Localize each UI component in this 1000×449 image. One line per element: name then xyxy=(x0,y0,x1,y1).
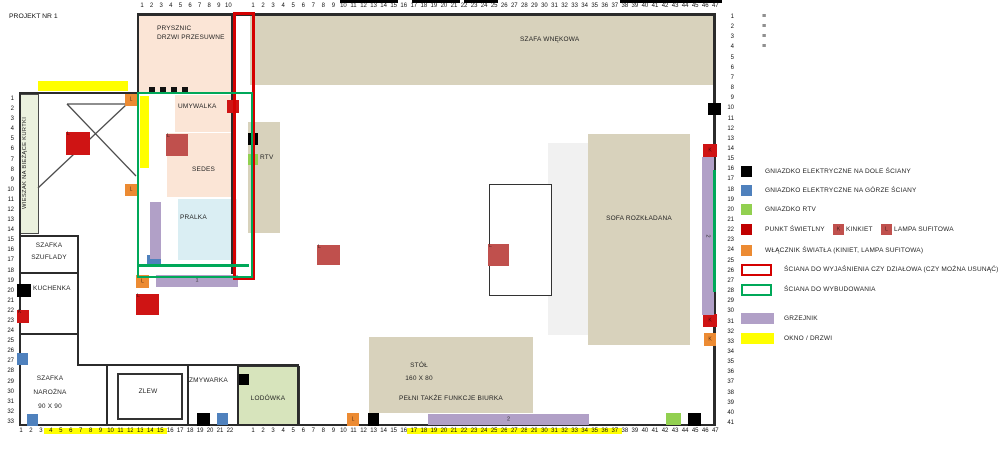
ruler-right-34: 34 xyxy=(722,349,734,355)
outlet-top-swatch xyxy=(741,185,752,196)
ruler-right-27: 27 xyxy=(722,278,734,284)
outlet-top-marker xyxy=(27,414,38,426)
light-point-marker: L xyxy=(66,132,90,155)
block-sofa xyxy=(588,134,690,345)
equals-mark: ≡ xyxy=(762,43,766,50)
label-szafka-szuflady-1: SZAFKA xyxy=(21,242,77,251)
label-prysznic: PRYSZNIC xyxy=(157,25,191,34)
heater-swatch xyxy=(741,313,774,324)
wall-to-build-line xyxy=(137,264,249,267)
window-door-swatch xyxy=(741,333,774,344)
label-szafka-narozna-3: 90 X 90 xyxy=(15,403,85,412)
ruler-right-6: 6 xyxy=(722,65,734,71)
ruler-left-18: 18 xyxy=(2,268,14,274)
outlet-bottom-marker xyxy=(197,413,210,426)
wall-cabinet-div xyxy=(19,235,79,237)
ruler-right-23: 23 xyxy=(722,237,734,243)
outlet-bottom-swatch xyxy=(741,166,752,177)
label-zlew: ZLEW xyxy=(117,388,179,397)
ruler-left-31: 31 xyxy=(2,399,14,405)
light-point-marker: L xyxy=(136,294,159,315)
outlet-bottom-label: GNIAZDKO ELEKTRYCZNE NA DOLE ŚCIANY xyxy=(765,168,911,175)
outlet-bottom-marker xyxy=(368,413,379,426)
label-stol-3: PEŁNI TAKŻE FUNKCJE BIURKA xyxy=(369,395,533,404)
ruler-right-32: 32 xyxy=(722,329,734,335)
ruler-left-17: 17 xyxy=(2,257,14,263)
ruler-left-8: 8 xyxy=(2,167,14,173)
wall-counter-div xyxy=(187,364,189,426)
label-stol-1: STÓŁ xyxy=(369,362,469,371)
ruler-right-36: 36 xyxy=(722,369,734,375)
ruler-bottom_main-47: 47 xyxy=(708,428,722,434)
light-point-marker: K xyxy=(17,310,29,323)
wall-prysznic-left xyxy=(137,13,139,93)
ruler-right-22: 22 xyxy=(722,227,734,233)
rtv-outlet-marker xyxy=(666,413,681,425)
floor-plan-canvas: PROJEKT NR 1 PRYSZNIC DRZWI PRZESUWN xyxy=(0,0,1000,449)
ruler-right-10: 10 xyxy=(722,105,734,111)
label-sofa: SOFA ROZKŁADANA xyxy=(588,215,690,224)
outlet-top-marker xyxy=(217,413,228,425)
light-point-marker: K xyxy=(703,314,717,327)
ruler-right-12: 12 xyxy=(722,126,734,132)
ruler-left-13: 13 xyxy=(2,217,14,223)
wall-counter-div xyxy=(106,364,108,426)
light-point-swatch xyxy=(741,224,752,235)
ruler-left-32: 32 xyxy=(2,409,14,415)
ruler-left-27: 27 xyxy=(2,358,14,364)
equals-mark: ≡ xyxy=(762,23,766,30)
ruler-right-37: 37 xyxy=(722,379,734,385)
outlet-top-marker xyxy=(17,353,28,365)
ruler-left-14: 14 xyxy=(2,227,14,233)
wall-to-build-outline xyxy=(137,92,253,278)
equals-mark: ≡ xyxy=(762,33,766,40)
light-point-label: PUNKT ŚWIETLNY xyxy=(765,226,825,233)
ruler-right-14: 14 xyxy=(722,146,734,152)
label-szafa-wnekowa: SZAFA WNĘKOWA xyxy=(520,36,579,45)
wall-cabinet-div xyxy=(19,272,79,274)
wall-question-swatch xyxy=(741,264,772,276)
light-switch-marker: L xyxy=(125,94,137,106)
ruler-top_inner-10: 10 xyxy=(221,3,235,9)
ruler-right-20: 20 xyxy=(722,207,734,213)
label-wieszak: WIESZAK NA BIEŻĄCE KURTKI xyxy=(22,98,28,228)
lampa sufitowa-swatch: L xyxy=(881,224,892,235)
ruler-left-33: 33 xyxy=(2,419,14,425)
light-switch-marker: L xyxy=(347,413,359,426)
ruler-right-19: 19 xyxy=(722,197,734,203)
outlet-top-label: GNIAZDKO ELEKTRYCZNE NA GÓRZE ŚCIANY xyxy=(765,187,917,194)
ceiling-lamp-marker: L xyxy=(488,244,509,266)
ruler-left-20: 20 xyxy=(2,288,14,294)
ruler-right-7: 7 xyxy=(722,75,734,81)
ruler-left-9: 9 xyxy=(2,177,14,183)
ruler-left-7: 7 xyxy=(2,157,14,163)
ruler-right-25: 25 xyxy=(722,258,734,264)
ruler-left-21: 21 xyxy=(2,298,14,304)
ruler-right-9: 9 xyxy=(722,95,734,101)
outlet-bottom-marker xyxy=(708,103,721,115)
ruler-left-15: 15 xyxy=(2,237,14,243)
ruler-left-23: 23 xyxy=(2,318,14,324)
ruler-right-39: 39 xyxy=(722,400,734,406)
equals-mark: ≡ xyxy=(762,13,766,20)
light-switch-marker: L xyxy=(125,184,137,196)
ruler-left-28: 28 xyxy=(2,368,14,374)
ruler-left-11: 11 xyxy=(2,197,14,203)
ruler-left-16: 16 xyxy=(2,247,14,253)
wall-question-label: ŚCIANA DO WYJAŚNIENIA CZY DZIAŁOWA (CZY … xyxy=(784,266,999,273)
light-switch-marker: K xyxy=(704,333,716,346)
ruler-left-6: 6 xyxy=(2,146,14,152)
wall-top xyxy=(137,13,716,16)
outlet-bottom-marker xyxy=(688,413,701,426)
ruler-left-26: 26 xyxy=(2,348,14,354)
ruler-left-12: 12 xyxy=(2,207,14,213)
ruler-right-29: 29 xyxy=(722,298,734,304)
page-title: PROJEKT NR 1 xyxy=(9,13,58,20)
ruler-left-3: 3 xyxy=(2,116,14,122)
outlet-bottom-marker xyxy=(17,284,31,297)
ruler-right-8: 8 xyxy=(722,85,734,91)
light-switch-swatch xyxy=(741,245,752,256)
ruler-right-24: 24 xyxy=(722,247,734,253)
wall-cabinets-right xyxy=(77,235,79,366)
label-zmywarka: ZMYWARKA xyxy=(189,377,228,386)
ruler-right-15: 15 xyxy=(722,156,734,162)
label-stol-2: 160 X 80 xyxy=(369,375,469,384)
window-door-label: OKNO / DRZWI xyxy=(784,335,832,342)
ruler-left-2: 2 xyxy=(2,106,14,112)
outlet-rtv-label: GNIAZDKO RTV xyxy=(765,206,816,213)
outlet-bottom-marker xyxy=(239,374,249,385)
light-point-marker: K xyxy=(703,144,717,157)
ruler-left-1: 1 xyxy=(2,96,14,102)
ruler-right-4: 4 xyxy=(722,44,734,50)
kinkiet-label: KINKIET xyxy=(846,226,873,233)
ruler-right-31: 31 xyxy=(722,319,734,325)
ruler-left-19: 19 xyxy=(2,278,14,284)
outlet-rtv-swatch xyxy=(741,204,752,215)
ruler-right-30: 30 xyxy=(722,308,734,314)
kinkiet-swatch: K xyxy=(833,224,844,235)
ruler-left-29: 29 xyxy=(2,379,14,385)
ruler-left-4: 4 xyxy=(2,126,14,132)
label-rtv: RTV xyxy=(260,154,273,163)
ruler-right-33: 33 xyxy=(722,339,734,345)
ruler-bottom_inner-22: 22 xyxy=(223,428,237,434)
ruler-right-5: 5 xyxy=(722,55,734,61)
ruler-left-24: 24 xyxy=(2,328,14,334)
ceiling-lamp-marker: L xyxy=(317,245,340,265)
room-szafa-wnekowa xyxy=(250,16,716,85)
heater-label: GRZEJNIK xyxy=(784,315,818,322)
wall-entry-top xyxy=(19,92,138,94)
ruler-right-16: 16 xyxy=(722,166,734,172)
block-gray xyxy=(548,143,588,335)
ruler-right-1: 1 xyxy=(722,14,734,20)
ruler-right-13: 13 xyxy=(722,136,734,142)
ruler-right-17: 17 xyxy=(722,176,734,182)
ruler-left-5: 5 xyxy=(2,136,14,142)
label-prysznic-2: DRZWI PRZESUWNE xyxy=(157,34,225,43)
label-szafka-narozna-1: SZAFKA xyxy=(15,375,85,384)
window-door-bar xyxy=(38,81,128,91)
ruler-left-25: 25 xyxy=(2,338,14,344)
label-kuchenka: KUCHENKA xyxy=(33,285,71,294)
wall-build-swatch xyxy=(741,284,772,296)
ruler-right-18: 18 xyxy=(722,187,734,193)
label-lodowka: LODÓWKA xyxy=(238,395,298,404)
light-switch-label: WŁĄCZNIK ŚWIATŁA (KINIET, LAMPA SUFITOWA… xyxy=(765,247,923,254)
lampa sufitowa-label: LAMPA SUFITOWA xyxy=(894,226,954,233)
ruler-right-2: 2 xyxy=(722,24,734,30)
ruler-left-10: 10 xyxy=(2,187,14,193)
ruler-right-21: 21 xyxy=(722,217,734,223)
label-szafka-narozna-2: NAROŻNA xyxy=(15,389,85,398)
block-side-table xyxy=(489,184,552,296)
heater-bar: 2 xyxy=(428,414,589,425)
ruler-right-40: 40 xyxy=(722,410,734,416)
wall-build-label: ŚCIANA DO WYBUDOWANIA xyxy=(784,286,876,293)
label-szafka-szuflady-2: SZUFLADY xyxy=(21,254,77,263)
ruler-right-3: 3 xyxy=(722,34,734,40)
ruler-top_main-47: 47 xyxy=(708,3,722,9)
ruler-right-38: 38 xyxy=(722,390,734,396)
ruler-left-22: 22 xyxy=(2,308,14,314)
ruler-right-35: 35 xyxy=(722,359,734,365)
ruler-right-41: 41 xyxy=(722,420,734,426)
ruler-right-28: 28 xyxy=(722,288,734,294)
ruler-right-26: 26 xyxy=(722,268,734,274)
wall-cabinet-div xyxy=(19,333,79,335)
ruler-left-30: 30 xyxy=(2,389,14,395)
ruler-right-11: 11 xyxy=(722,116,734,122)
wall-to-build-right xyxy=(713,170,716,292)
